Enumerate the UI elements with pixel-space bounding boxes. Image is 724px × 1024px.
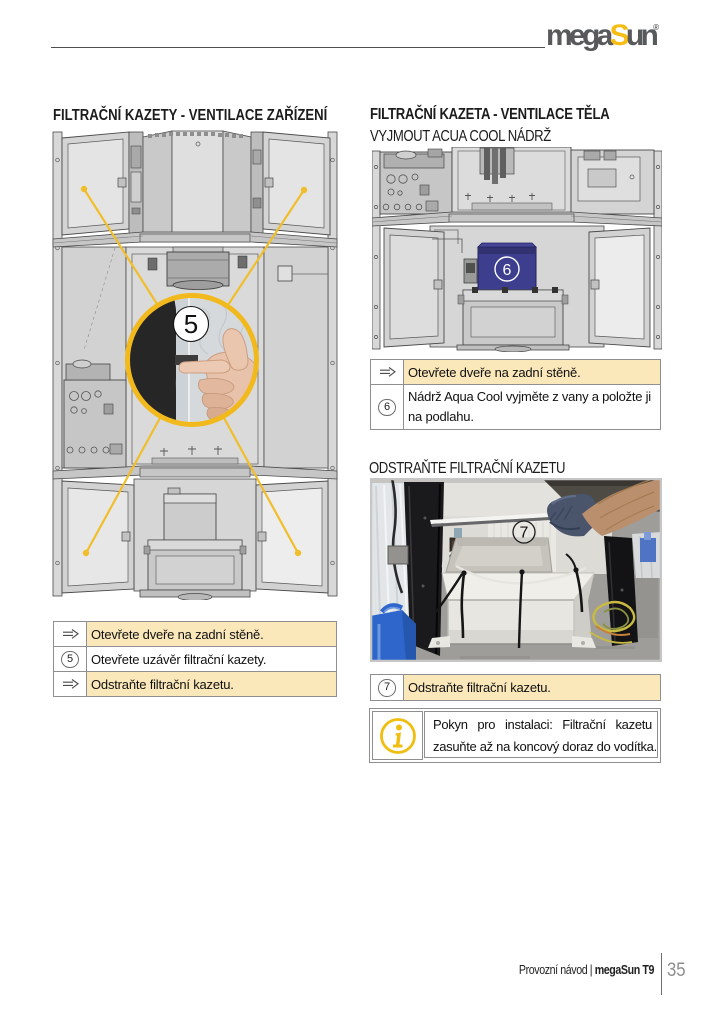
svg-text:6: 6 xyxy=(503,262,512,279)
svg-text:7: 7 xyxy=(520,525,529,542)
svg-text:5: 5 xyxy=(184,309,198,339)
